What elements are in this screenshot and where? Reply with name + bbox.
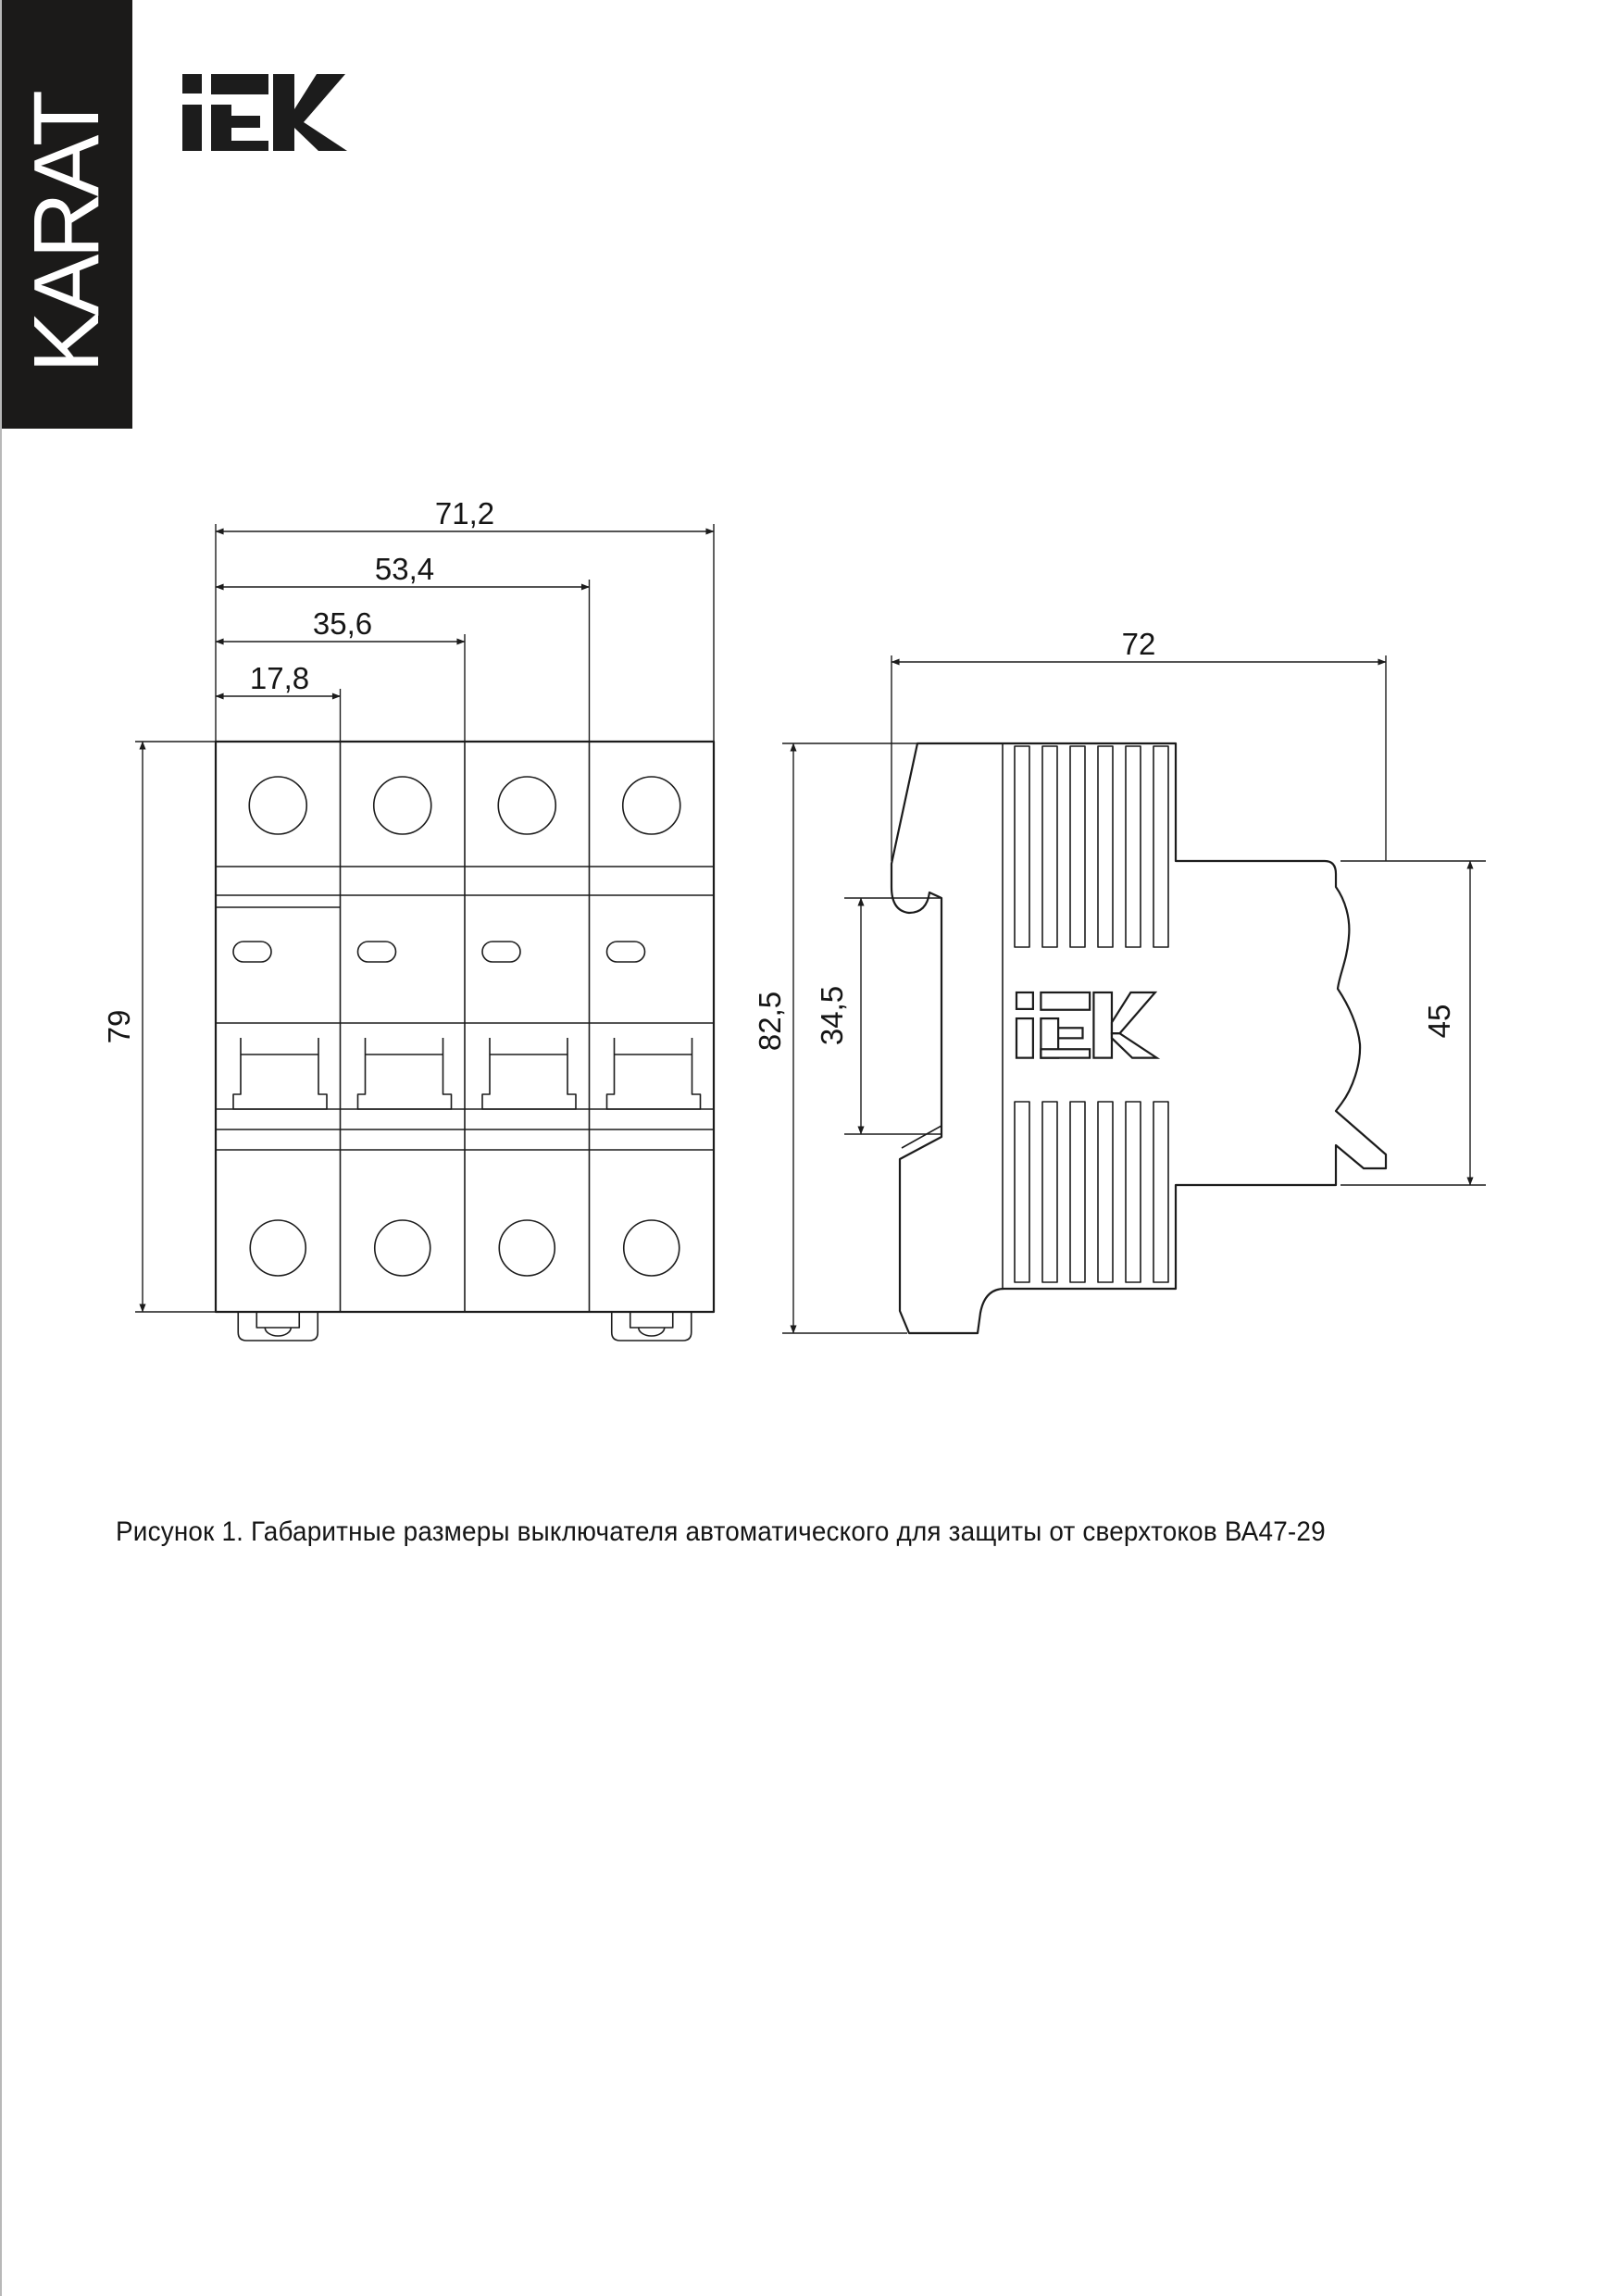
side-ribs-upper (1015, 746, 1168, 947)
dim-label-depth: 72 (1122, 627, 1156, 661)
side-clip-tab (902, 1126, 941, 1148)
dim-label-front-height: 45 (1422, 1004, 1456, 1039)
side-body-outline (892, 743, 1386, 1333)
front-module-separators (341, 742, 590, 1312)
front-view: 71,2 53,4 35,6 17,8 79 (102, 496, 714, 1341)
dim-label-height-total: 82,5 (753, 992, 787, 1051)
dim-label-height: 79 (102, 1010, 136, 1044)
front-dimension-lines (143, 531, 714, 1312)
dim-label-width-total: 71,2 (435, 496, 494, 530)
side-ribs-lower (1015, 1102, 1168, 1282)
side-view: 72 82,5 34,5 45 (753, 627, 1486, 1333)
iek-logo (182, 74, 347, 151)
dimension-drawing: 71,2 53,4 35,6 17,8 79 (0, 0, 1621, 2296)
front-toggle-handles (233, 1038, 701, 1109)
dim-label-width-1: 17,8 (250, 661, 309, 695)
dim-label-rail-recess: 34,5 (815, 986, 849, 1045)
front-din-clips (238, 1312, 692, 1341)
datasheet-page: KARAT (0, 0, 1621, 2296)
front-label-windows (233, 942, 645, 962)
dim-label-width-3: 53,4 (375, 552, 434, 586)
dim-label-width-2: 35,6 (313, 606, 372, 641)
figure-caption: Рисунок 1. Габаритные размеры выключател… (116, 1516, 1326, 1548)
iek-logo-embossed (1016, 992, 1156, 1058)
